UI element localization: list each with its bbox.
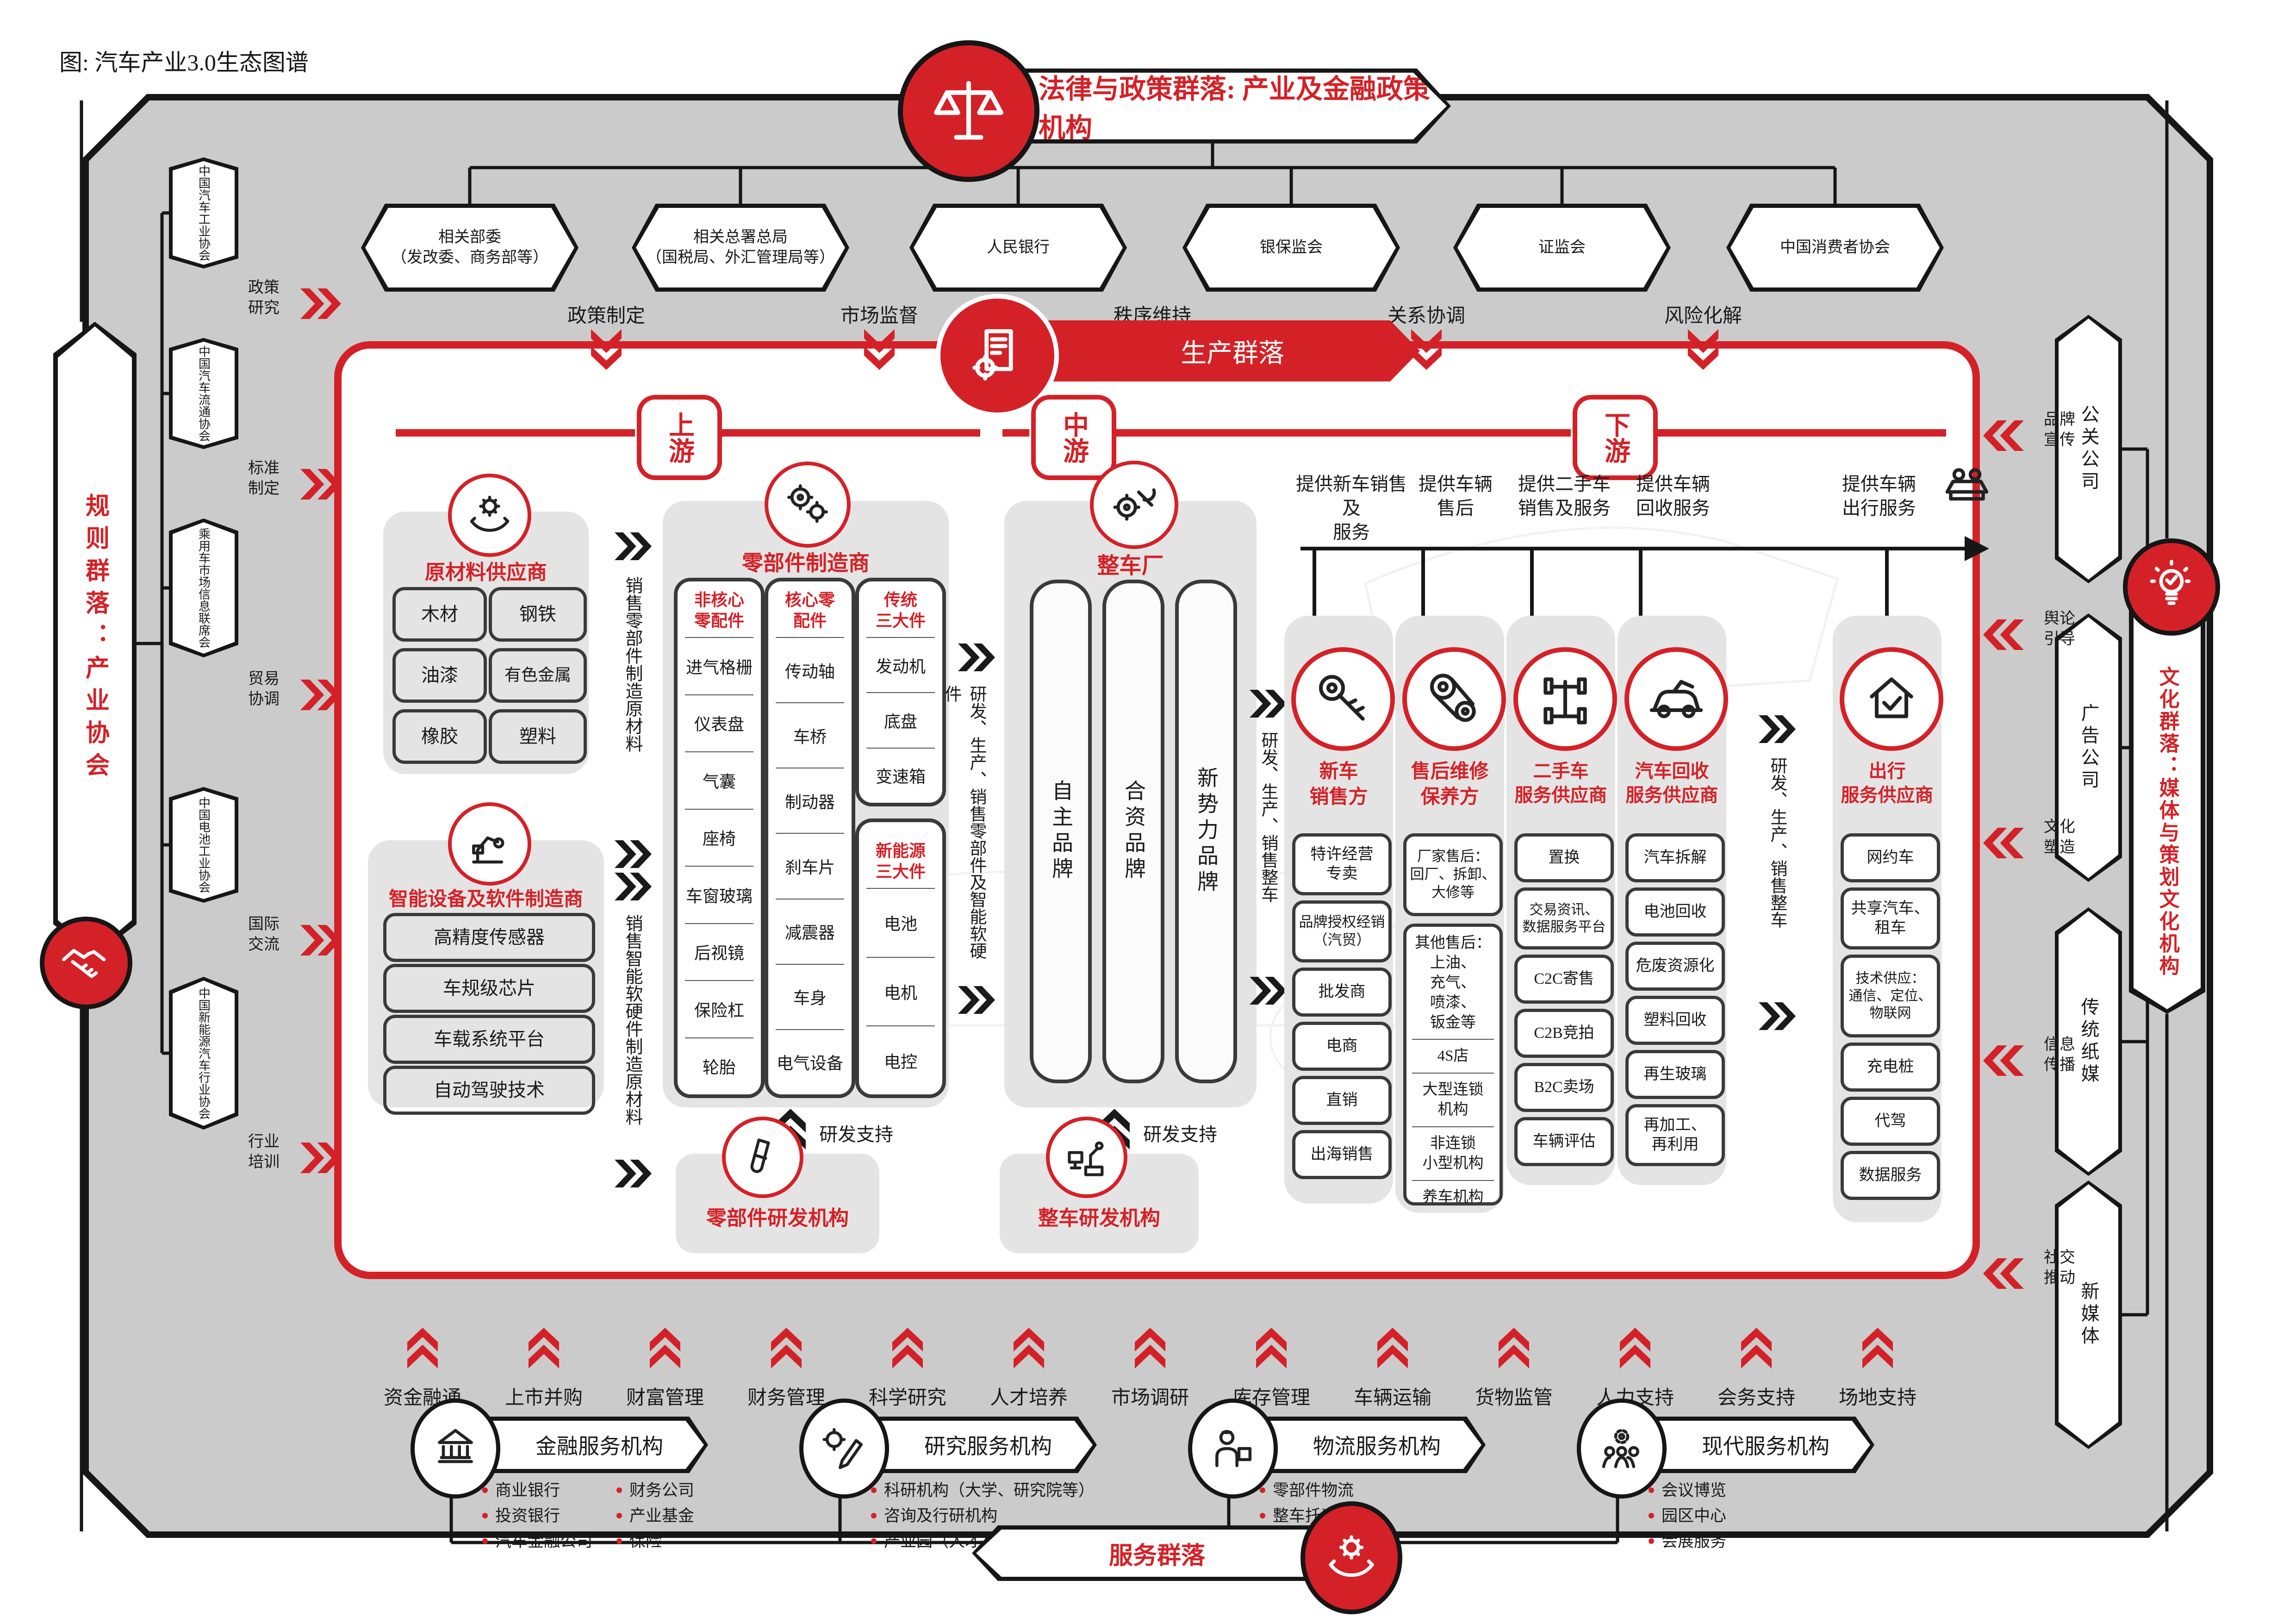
bullet-item: 汽车金融公司 <box>481 1529 592 1554</box>
top-org-label: 银保监会 <box>1187 208 1396 287</box>
right-function-label: 信息 传播 <box>2029 1035 2090 1075</box>
chevron-up-icon <box>523 1328 564 1368</box>
chevron-up-icon <box>766 1328 807 1368</box>
recycling-icon-circle <box>1624 647 1728 751</box>
chevron-right-icon <box>300 680 341 710</box>
parts-item: 车窗玻璃 <box>685 866 753 923</box>
right-function-label: 舆论 引导 <box>2029 609 2090 650</box>
right-function-label: 社交 推动 <box>2029 1248 2090 1288</box>
culture-cluster-inner: 文化群落：媒体与策划文化机构 <box>2134 583 2201 1009</box>
house-check-icon <box>1862 669 1921 729</box>
bank-icon <box>431 1424 479 1473</box>
chevron-up-icon <box>1008 1328 1049 1368</box>
stream-badge-label: 下游 <box>1597 412 1634 463</box>
chevron-right-icon <box>300 925 341 956</box>
chevron-down-icon <box>591 329 622 370</box>
rd-support-label: 研发支持 <box>819 1119 893 1146</box>
chevron-left-icon <box>1983 1045 2024 1076</box>
left-function-label: 标准 制定 <box>234 458 294 499</box>
recycling-item: 汽车拆解 <box>1625 833 1725 882</box>
bottom-function-label: 财富管理 <box>614 1382 716 1410</box>
parts-item: 制动器 <box>776 768 844 833</box>
chevron-right-icon <box>1759 715 1796 743</box>
left-function-label: 国际 交流 <box>234 914 294 955</box>
top-function-label: 市场监督 <box>828 300 930 328</box>
chevron-right-icon <box>958 643 995 671</box>
aftersales-factory-item: 厂家售后： 回厂、拆卸、 大修等 <box>1403 833 1503 916</box>
left-org-inner: 中国电池工业协会 <box>173 791 235 899</box>
rules-cluster-inner: 规则群落：产业协会 <box>58 326 132 951</box>
raw-material-item: 木材 <box>392 587 487 642</box>
top-org-hex: 相关总署总局 （国税局、外汇管理局等） <box>632 204 849 292</box>
law-policy-icon-circle <box>898 40 1039 182</box>
aftersales-group-item: 非连锁 小型机构 <box>1412 1126 1494 1180</box>
vehicle-rd-title: 整车研发机构 <box>1004 1201 1194 1231</box>
service-cluster-banner: 服务群落 <box>972 1525 1342 1581</box>
left-org-label: 乘用车市场信息联席会 <box>195 528 212 648</box>
figure-caption: 图: 汽车产业3.0生态图谱 <box>59 44 309 77</box>
left-function-label: 贸易 协调 <box>234 669 294 710</box>
parts-item: 发动机 <box>866 637 935 692</box>
parts-item: 电控 <box>866 1025 935 1094</box>
stream-badge-downstream: 下游 <box>1573 395 1658 480</box>
mobility-title: 出行 服务供应商 <box>1836 759 1938 807</box>
service-cluster-icon-circle <box>1300 1501 1402 1614</box>
chassis-icon <box>1536 669 1595 729</box>
bullet-item: 商业银行 <box>481 1478 592 1503</box>
chevron-down-icon <box>864 329 895 370</box>
mobility-item: 代驾 <box>1841 1097 1940 1146</box>
newcar-item: 批发商 <box>1292 968 1392 1017</box>
recycling-title: 汽车回收 服务供应商 <box>1621 759 1723 807</box>
chevron-up-icon <box>1615 1328 1655 1368</box>
newcar-item: 特许经营 专卖 <box>1292 833 1392 895</box>
recycling-item: 危废资源化 <box>1625 942 1725 991</box>
parts-col-core: 核心零 配件 传动轴 车桥 制动器 刹车片 减震器 车身 电气设备 <box>765 578 855 1098</box>
oem-brand-label: 自主品牌 <box>1045 780 1076 883</box>
service-cluster-label: 服务群落 <box>1109 1536 1205 1571</box>
parts-col-header: 核心零 配件 <box>768 581 852 637</box>
top-org-hex: 银保监会 <box>1182 204 1400 292</box>
bullet-item: 科研机构（大学、研究院等） <box>870 1478 1111 1503</box>
top-org-hex: 中国消费者协会 <box>1726 204 1944 292</box>
chevron-right-icon <box>300 1143 341 1173</box>
research-banner-label: 研究服务机构 <box>873 1430 1052 1460</box>
rules-cluster-hex: 规则群落：产业协会 <box>53 322 137 956</box>
parts-manufacturer-title: 零部件制造商 <box>667 546 944 577</box>
oem-brand-pill: 合资品牌 <box>1102 580 1164 1083</box>
parts-item: 后视镜 <box>685 923 753 981</box>
top-org-label: 相关总署总局 （国税局、外汇管理局等） <box>636 208 845 287</box>
parts-col-header: 传统 三大件 <box>859 581 942 637</box>
bottom-function-label: 科学研究 <box>857 1382 958 1410</box>
smart-equipment-icon-circle <box>448 802 531 886</box>
belt-pulley-icon <box>1425 669 1484 729</box>
newcar-icon-circle <box>1291 647 1395 751</box>
bullet-item: 投资银行 <box>481 1503 592 1529</box>
top-org-label: 证监会 <box>1457 208 1667 287</box>
chevron-up-icon <box>1493 1328 1534 1368</box>
recycling-item: 再生玻璃 <box>1625 1050 1725 1099</box>
vehicle-rd-icon-circle <box>1046 1117 1127 1198</box>
left-org-label: 中国汽车流通协会 <box>195 345 212 442</box>
usedcar-item: 交易资讯、 数据服务平台 <box>1514 887 1614 949</box>
left-org-label: 中国新能源汽车行业协会 <box>195 987 212 1119</box>
smart-equipment-title: 智能设备及软件制造商 <box>373 883 599 912</box>
smart-equipment-item: 车规级芯片 <box>383 964 595 1013</box>
gear-document-icon <box>965 323 1030 388</box>
gears-icon <box>783 480 833 530</box>
left-org-hex: 乘用车市场信息联席会 <box>169 518 238 657</box>
aftersales-group-item: 养车机构 <box>1412 1180 1494 1206</box>
top-function-label: 政策制定 <box>555 300 657 328</box>
aftersales-other-group: 其他售后： 上油、 充气、 喷漆、 钣金等 4S店 大型连锁 机构 非连锁 小型… <box>1403 924 1503 1206</box>
top-org-hex: 人民银行 <box>909 204 1127 292</box>
chevron-up-icon <box>645 1328 685 1368</box>
parts-item: 刹车片 <box>776 833 844 898</box>
right-function-label: 文化 塑造 <box>2029 817 2090 858</box>
usedcar-item: 车辆评估 <box>1514 1117 1614 1166</box>
newcar-item: 出海销售 <box>1292 1130 1392 1179</box>
newcar-title: 新车 销售方 <box>1288 759 1389 810</box>
aftersales-title: 售后维修 保养方 <box>1399 759 1500 810</box>
parts-item: 电池 <box>866 888 935 957</box>
left-org-inner: 中国新能源汽车行业协会 <box>173 981 235 1126</box>
stream-badge-label: 上游 <box>661 412 698 463</box>
finance-bullets-col1: 商业银行 投资银行 汽车金融公司 <box>481 1478 592 1554</box>
chevron-left-icon <box>1983 1258 2024 1289</box>
flow-label-sell-parts-materials: 销售零部件制造原材料 <box>621 576 645 836</box>
robot-arm-icon <box>466 820 514 868</box>
chevron-up-icon <box>1130 1328 1170 1368</box>
downstream-service-label: 提供车辆 售后 <box>1395 472 1516 520</box>
top-function-label: 风险化解 <box>1652 300 1754 328</box>
usedcar-icon-circle <box>1513 647 1617 751</box>
law-policy-banner-inner: 法律与政策群落: 产业及金融政策机构 <box>969 73 1447 139</box>
raw-material-item: 油漆 <box>392 648 487 703</box>
bullet-item: 零部件物流 <box>1259 1478 1354 1503</box>
raw-material-icon-circle <box>448 474 531 557</box>
handshake-icon <box>59 936 113 990</box>
aftersales-group-item: 大型连锁 机构 <box>1412 1073 1494 1126</box>
parts-item: 电气设备 <box>776 1029 844 1094</box>
oem-brand-pill: 新势力品牌 <box>1175 580 1237 1083</box>
people-gear-icon <box>1598 1424 1646 1473</box>
finance-bullets-col2: 财务公司 产业基金 保险 <box>616 1478 694 1554</box>
chevron-right-icon <box>958 986 995 1014</box>
oem-brand-pill: 自主品牌 <box>1030 580 1092 1083</box>
parts-rd-title: 零部件研发机构 <box>680 1201 875 1231</box>
stream-badge-midstream: 中游 <box>1031 395 1116 480</box>
left-org-inner: 中国汽车工业协会 <box>173 161 235 265</box>
mobility-item: 充电桩 <box>1841 1043 1940 1092</box>
parts-item: 底盘 <box>866 692 935 747</box>
downstream-service-label: 提供新车销售及 服务 <box>1291 472 1412 544</box>
parts-item: 车身 <box>776 964 844 1029</box>
chevron-right-icon <box>300 469 341 500</box>
smart-equipment-item: 车载系统平台 <box>383 1015 595 1064</box>
parts-item: 变速箱 <box>866 748 935 803</box>
parts-rd-icon-circle <box>722 1117 803 1198</box>
car-key-icon <box>1313 669 1373 729</box>
bottom-function-label: 市场调研 <box>1099 1382 1201 1410</box>
raw-material-item: 有色金属 <box>489 648 587 703</box>
downstream-service-label: 提供车辆 回收服务 <box>1613 472 1733 520</box>
bottom-function-label: 货物监管 <box>1463 1382 1565 1410</box>
oem-title: 整车厂 <box>1009 547 1252 580</box>
bottom-function-label: 人才培养 <box>978 1382 1080 1410</box>
usedcar-title: 二手车 服务供应商 <box>1510 759 1612 807</box>
chevron-up-icon <box>402 1328 443 1368</box>
top-org-label: 人民银行 <box>914 208 1123 287</box>
parts-col-nev-big3: 新能源 三大件 电池 电机 电控 <box>855 818 946 1098</box>
lightbulb-icon <box>2144 559 2199 615</box>
oem-brand-label: 合资品牌 <box>1118 780 1149 883</box>
usedcar-item: C2B竞拍 <box>1514 1009 1614 1058</box>
chevron-right-icon <box>615 1160 652 1187</box>
left-org-inner: 中国汽车流通协会 <box>173 342 235 445</box>
left-org-hex: 中国电池工业协会 <box>169 787 238 903</box>
flow-label-rd-produce-sell-vehicle-2: 研发、生产、销售整车 <box>1765 757 1789 979</box>
chevron-right-icon <box>615 840 652 868</box>
usedcar-item: 置换 <box>1514 833 1614 882</box>
newcar-item: 电商 <box>1292 1022 1392 1071</box>
parts-col-traditional-big3: 传统 三大件 发动机 底盘 变速箱 <box>855 578 946 806</box>
parts-col-header: 非核心 零配件 <box>678 581 761 637</box>
parts-item: 电机 <box>866 957 935 1026</box>
bottom-function-label: 场地支持 <box>1827 1382 1929 1410</box>
scale-icon <box>932 74 1006 148</box>
raw-material-item: 橡胶 <box>392 709 487 764</box>
mobility-item: 共享汽车、 租车 <box>1841 887 1940 949</box>
parts-col-noncore: 非核心 零配件 进气格栅 仪表盘 气囊 座椅 车窗玻璃 后视镜 保险杠 轮胎 <box>674 578 765 1098</box>
mobility-item: 技术供应： 通信、定位、 物联网 <box>1841 955 1940 1037</box>
rules-icon-circle <box>40 917 132 1009</box>
finance-banner-label: 金融服务机构 <box>485 1430 663 1460</box>
left-org-hex: 中国汽车流通协会 <box>169 338 238 449</box>
hands-gear-icon <box>466 491 514 539</box>
parts-item: 气囊 <box>685 751 753 809</box>
parts-item: 轮胎 <box>685 1037 753 1095</box>
recycling-item: 电池回收 <box>1625 887 1725 937</box>
flow-label-sell-smart-materials: 销售智能软硬件制造原材料 <box>621 914 645 1146</box>
robot-computer-icon <box>1064 1134 1110 1181</box>
parts-item: 仪表盘 <box>685 694 753 752</box>
flow-label-rd-produce-sell-vehicle: 研发、生产、销售整车 <box>1256 731 1280 954</box>
parts-col-header: 新能源 三大件 <box>859 822 942 888</box>
right-org-hex: 新媒体 <box>2055 1181 2122 1449</box>
top-org-hex: 相关部委 （发改委、商务部等） <box>361 204 579 292</box>
people-car-icon <box>1939 465 1995 521</box>
modern-services-banner-label: 现代服务机构 <box>1651 1430 1829 1460</box>
bottom-function-label: 车辆运输 <box>1342 1382 1444 1410</box>
left-org-label: 中国电池工业协会 <box>195 797 212 893</box>
usedcar-item: C2C寄售 <box>1514 955 1614 1004</box>
right-function-label: 品牌 宣传 <box>2029 410 2090 450</box>
car-hood-icon <box>1647 669 1706 729</box>
bullet-item: 咨询及行研机构 <box>870 1503 1111 1529</box>
gear-pencil-icon <box>820 1424 868 1473</box>
raw-material-item: 钢铁 <box>489 587 587 642</box>
bottom-function-label: 上市并购 <box>493 1382 595 1410</box>
delivery-worker-icon <box>1209 1424 1257 1473</box>
aftersales-group-item: 4S店 <box>1412 1039 1494 1073</box>
law-policy-banner-label: 法律与政策群落: 产业及金融政策机构 <box>969 67 1447 145</box>
parts-manufacturer-icon-circle <box>765 462 851 548</box>
modern-services-bullets: 会议博览 园区中心 会展服务 <box>1648 1478 1726 1554</box>
left-org-inner: 乘用车市场信息联席会 <box>173 522 235 654</box>
top-org-hex: 证监会 <box>1453 204 1671 292</box>
gear-wrench-icon <box>1108 479 1160 531</box>
flow-label-rd-produce-sell-parts: 研发、生产、销售零部件及智能软硬件 <box>964 685 989 972</box>
top-org-label: 相关部委 （发改委、商务部等） <box>365 208 574 287</box>
left-org-hex: 中国汽车工业协会 <box>169 157 238 269</box>
culture-icon-circle <box>2123 538 2220 636</box>
logistics-banner-label: 物流服务机构 <box>1262 1430 1441 1460</box>
usedcar-item: B2C卖场 <box>1514 1063 1614 1112</box>
chevron-right-icon <box>615 532 652 560</box>
mobility-icon-circle <box>1840 647 1943 751</box>
stream-badge-label: 中游 <box>1055 412 1093 463</box>
chevron-up-icon <box>1251 1328 1292 1368</box>
culture-cluster-label: 文化群落：媒体与策划文化机构 <box>2153 666 2182 977</box>
infographic-canvas: 图: 汽车产业3.0生态图谱 法律与政策群落: 产业及金融政策机构 相关部委 （… <box>0 0 2296 1624</box>
left-org-hex: 中国新能源汽车行业协会 <box>169 977 238 1130</box>
test-tube-icon <box>740 1134 786 1181</box>
chevron-right-icon <box>300 288 341 319</box>
smart-equipment-item: 自动驾驶技术 <box>383 1066 595 1115</box>
mobility-item: 数据服务 <box>1841 1151 1940 1200</box>
bullet-item: 产业基金 <box>616 1503 694 1529</box>
stream-badge-upstream: 上游 <box>637 395 722 480</box>
bullet-item: 会展服务 <box>1648 1529 1726 1554</box>
downstream-service-label: 提供二手车 销售及服务 <box>1504 472 1624 520</box>
culture-cluster-hex: 文化群落：媒体与策划文化机构 <box>2129 579 2205 1014</box>
chevron-right-icon <box>1250 690 1287 718</box>
recycling-item: 再加工、 再利用 <box>1625 1104 1725 1166</box>
smart-equipment-item: 高精度传感器 <box>383 913 595 962</box>
left-function-label: 行业 培训 <box>234 1132 294 1173</box>
newcar-item: 品牌授权经销 （汽贸） <box>1292 900 1392 962</box>
newcar-item: 直销 <box>1292 1076 1392 1125</box>
parts-item: 车桥 <box>776 702 844 768</box>
oem-icon-circle <box>1090 461 1178 549</box>
chevron-left-icon <box>1983 828 2024 858</box>
right-org-label: 新媒体 <box>2075 1281 2102 1348</box>
chevron-up-icon <box>1372 1328 1413 1368</box>
parts-item: 进气格栅 <box>685 637 753 694</box>
downstream-service-label: 提供车辆 出行服务 <box>1819 472 1939 520</box>
bullet-item: 财务公司 <box>616 1478 694 1503</box>
top-org-label: 中国消费者协会 <box>1730 208 1940 287</box>
hands-gear-icon <box>1324 1530 1379 1586</box>
chevron-up-icon <box>1736 1328 1777 1368</box>
parts-item: 座椅 <box>685 809 753 866</box>
rules-cluster-label: 规则群落：产业协会 <box>78 493 112 785</box>
left-org-label: 中国汽车工业协会 <box>195 165 212 261</box>
right-org-inner: 新媒体 <box>2059 1184 2118 1445</box>
aftersales-group-item: 其他售后： 上油、 充气、 喷漆、 钣金等 <box>1412 927 1494 1039</box>
oem-brand-label: 新势力品牌 <box>1191 767 1221 896</box>
raw-material-title: 原材料供应商 <box>388 556 584 585</box>
bottom-function-label: 会务支持 <box>1705 1382 1807 1410</box>
chevron-right-icon <box>615 873 652 900</box>
chevron-down-icon <box>1688 329 1718 370</box>
parts-item: 保险杠 <box>685 980 753 1037</box>
parts-item: 传动轴 <box>776 637 844 702</box>
parts-item: 减震器 <box>776 899 844 964</box>
chevron-left-icon <box>1983 619 2024 650</box>
service-cluster-inner: 服务群落 <box>976 1530 1338 1577</box>
chevron-right-icon <box>1250 977 1287 1005</box>
bullet-item: 保险 <box>616 1529 694 1554</box>
chevron-left-icon <box>1983 420 2024 451</box>
chevron-up-icon <box>1857 1328 1898 1368</box>
chevron-up-icon <box>887 1328 928 1368</box>
aftersales-icon-circle <box>1402 647 1506 751</box>
bullet-item: 会议博览 <box>1648 1478 1726 1503</box>
left-function-label: 政策 研究 <box>234 278 294 319</box>
chevron-right-icon <box>1759 1002 1796 1030</box>
right-org-label: 广告公司 <box>2075 703 2102 792</box>
rd-support-label: 研发支持 <box>1143 1119 1217 1146</box>
bullet-item: 园区中心 <box>1648 1503 1726 1529</box>
raw-material-item: 塑料 <box>489 709 587 764</box>
mobility-item: 网约车 <box>1841 833 1940 882</box>
recycling-item: 塑料回收 <box>1625 996 1725 1045</box>
